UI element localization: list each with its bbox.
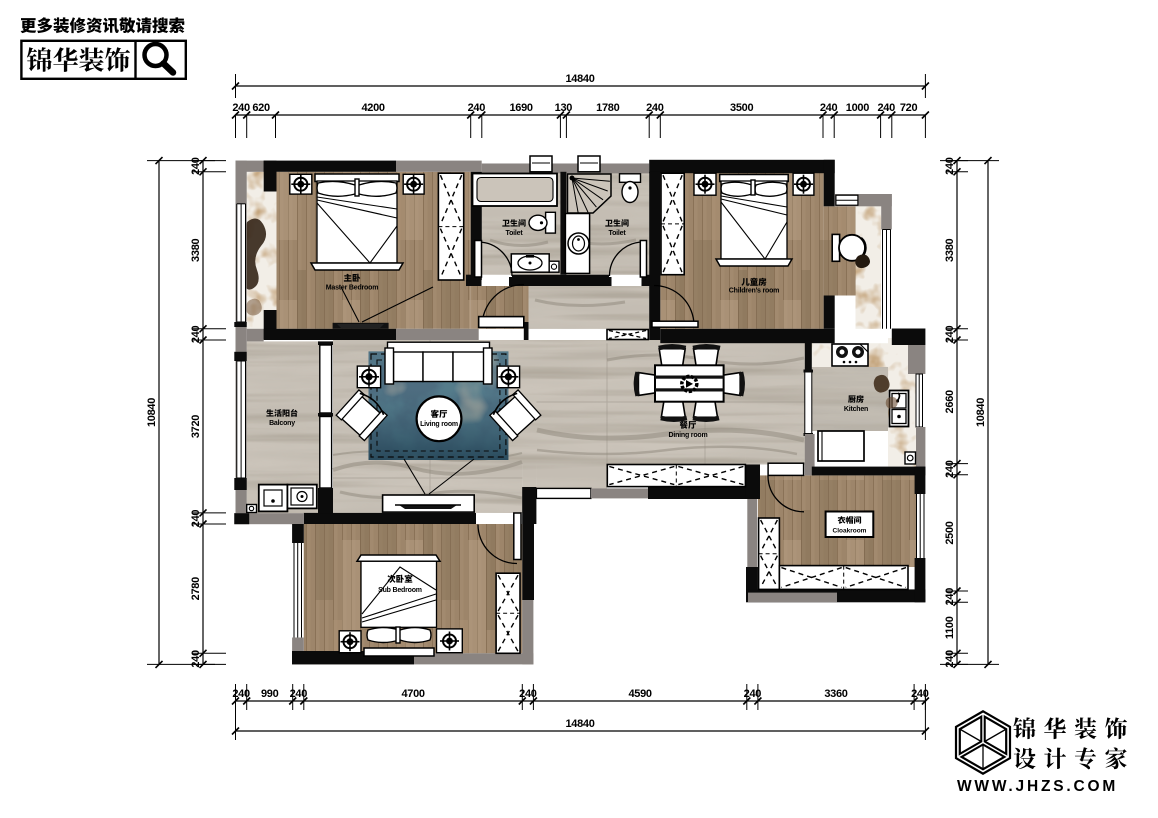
svg-text:620: 620 [252,102,270,114]
svg-text:1690: 1690 [509,102,532,114]
svg-text:240: 240 [468,102,486,114]
svg-text:3500: 3500 [730,102,753,114]
svg-text:240: 240 [290,688,308,700]
svg-text:3720: 3720 [190,415,202,438]
svg-text:1780: 1780 [596,102,619,114]
svg-text:Cloakroom: Cloakroom [833,528,867,535]
svg-text:Living room: Living room [420,421,458,428]
svg-text:WWW.JHZS.COM: WWW.JHZS.COM [957,778,1118,795]
svg-text:240: 240 [190,325,202,343]
svg-text:240: 240 [944,157,956,175]
svg-text:Toilet: Toilet [609,230,627,237]
svg-text:240: 240 [944,325,956,343]
svg-text:Master Bedroom: Master Bedroom [326,285,378,292]
svg-text:130: 130 [555,102,573,114]
svg-text:3380: 3380 [944,238,956,261]
svg-text:1100: 1100 [944,616,956,639]
svg-text:Toilet: Toilet [506,230,524,237]
svg-text:240: 240 [911,688,929,700]
svg-text:240: 240 [944,460,956,478]
svg-text:Balcony: Balcony [269,420,295,427]
svg-text:4590: 4590 [628,688,651,700]
svg-text:1000: 1000 [846,102,869,114]
svg-text:14840: 14840 [565,73,594,85]
svg-text:240: 240 [744,688,762,700]
svg-text:10840: 10840 [975,398,987,427]
svg-text:3380: 3380 [190,238,202,261]
svg-text:720: 720 [900,102,918,114]
svg-text:240: 240 [190,510,202,528]
svg-text:10840: 10840 [146,398,158,427]
svg-text:240: 240 [944,650,956,668]
svg-text:240: 240 [820,102,838,114]
svg-text:240: 240 [944,588,956,606]
svg-text:2780: 2780 [190,577,202,600]
svg-text:Sub Bedroom: Sub Bedroom [378,587,422,594]
svg-text:2660: 2660 [944,390,956,413]
svg-text:Dining room: Dining room [668,432,707,439]
svg-text:240: 240 [190,650,202,668]
svg-text:4700: 4700 [401,688,424,700]
svg-text:240: 240 [232,688,250,700]
svg-text:240: 240 [646,102,664,114]
svg-text:4200: 4200 [361,102,384,114]
svg-text:Kitchen: Kitchen [844,406,868,413]
svg-text:240: 240 [232,102,250,114]
svg-text:990: 990 [261,688,279,700]
svg-text:Children's room: Children's room [729,288,779,295]
svg-text:240: 240 [877,102,895,114]
svg-text:3360: 3360 [824,688,847,700]
svg-text:240: 240 [190,157,202,175]
svg-text:2500: 2500 [944,521,956,544]
svg-text:14840: 14840 [565,718,594,730]
svg-text:240: 240 [519,688,537,700]
